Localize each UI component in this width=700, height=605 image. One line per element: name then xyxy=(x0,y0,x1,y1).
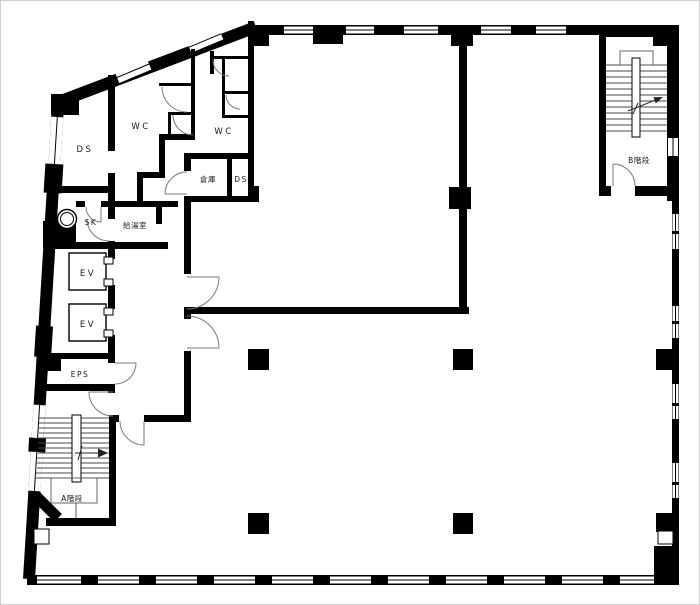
column xyxy=(37,438,38,452)
room-label-kyutou: 給湯室 xyxy=(123,220,147,230)
door-arc xyxy=(89,392,113,416)
door-arc xyxy=(187,277,219,309)
door-arc xyxy=(165,172,187,194)
sink-circle xyxy=(58,210,77,229)
door-arc xyxy=(613,164,635,186)
stair-b-stringer xyxy=(632,58,640,137)
door-arc xyxy=(173,115,193,135)
floor-plan-page: DS WC WC 倉庫 DS SK 給湯室 EV EV EPS A階段 B階段 xyxy=(0,0,700,605)
room-label-ds-main: DS xyxy=(77,145,94,155)
room-label-stair-b: B階段 xyxy=(628,155,650,165)
room-label-sk: SK xyxy=(85,218,98,227)
exterior-walls xyxy=(27,25,679,585)
room-label-wc-west: WC xyxy=(131,122,150,132)
column xyxy=(453,349,473,370)
stair-b xyxy=(606,51,667,137)
column xyxy=(248,349,269,370)
door-arc xyxy=(213,60,229,76)
door-arc xyxy=(115,363,136,384)
room-label-souko: 倉庫 xyxy=(200,174,216,184)
room-label-eps: EPS xyxy=(71,370,90,379)
floor-plan: DS WC WC 倉庫 DS SK 給湯室 EV EV EPS A階段 B階段 xyxy=(1,1,700,605)
wall-niche xyxy=(658,531,673,544)
column xyxy=(43,326,45,357)
columns xyxy=(248,349,473,534)
room-label-stair-a: A階段 xyxy=(61,493,83,503)
room-label-wc-east: WC xyxy=(214,127,233,137)
interior-walls xyxy=(43,21,679,526)
column xyxy=(248,513,269,534)
room-label-ev-lower: EV xyxy=(80,320,96,330)
column xyxy=(656,349,679,370)
door-arc xyxy=(226,95,240,109)
door-arc xyxy=(162,87,187,112)
door-arc xyxy=(187,316,219,348)
door-arc xyxy=(120,421,144,445)
room-label-ev-upper: EV xyxy=(80,269,96,279)
column xyxy=(313,25,343,44)
stair-a-stringer xyxy=(72,415,81,482)
column xyxy=(449,187,471,209)
wall-niche xyxy=(34,529,49,544)
column xyxy=(656,513,679,532)
column xyxy=(453,513,473,534)
room-label-ds-small: DS xyxy=(234,175,248,184)
